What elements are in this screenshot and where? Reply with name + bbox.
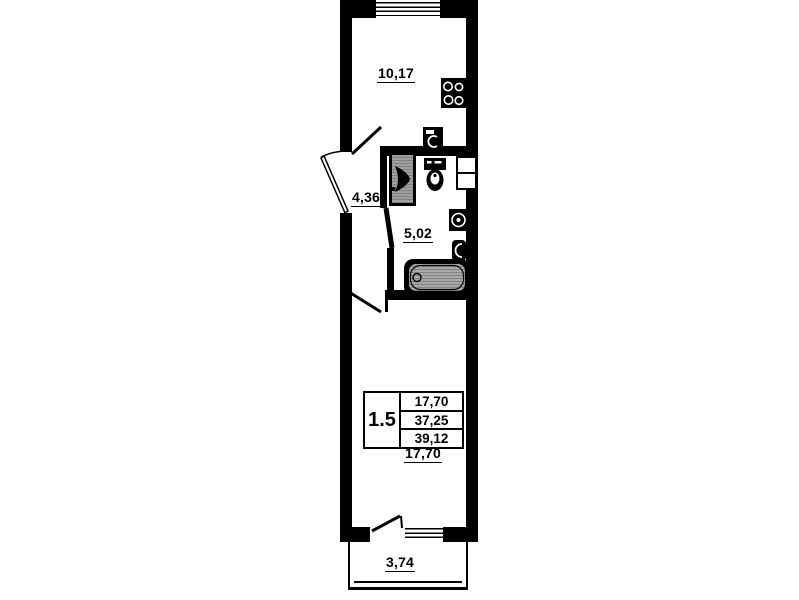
living-room-door-leaf-icon [349, 292, 381, 312]
apartment-type-cell: 1.5 [365, 393, 401, 447]
balcony-area-label: 3,74 [385, 555, 415, 572]
stamp-area-rows: 17,70 37,25 39,12 [401, 393, 462, 447]
bathroom-area-label: 5,02 [403, 226, 433, 243]
stamp-total-area: 39,12 [401, 430, 462, 447]
towel-rail-icon [452, 240, 466, 261]
hallway-area-label: 4,36 [351, 190, 381, 207]
window-icon [376, 2, 440, 16]
bathroom-door-leaf-icon [386, 208, 392, 248]
balcony-wall-bottom [348, 587, 468, 590]
vent-duct-lower [456, 172, 477, 190]
stamp-living-area: 17,70 [401, 393, 462, 412]
toilet-tank-icon [424, 158, 446, 170]
wall-balcony-left-segment [352, 527, 370, 542]
plan-linework [0, 0, 799, 600]
balcony-door-leaf-icon [372, 516, 402, 531]
bathtub-interior [409, 264, 465, 291]
balcony-window-icon [405, 528, 443, 541]
floor-plan: 10,17 4,36 5,02 17,70 3,74 1.5 17,70 37,… [0, 0, 799, 600]
stamp-apartment-area: 37,25 [401, 412, 462, 431]
washing-machine-icon [423, 127, 443, 152]
sink-icon [449, 209, 468, 231]
apartment-stamp-table: 1.5 17,70 37,25 39,12 [363, 391, 464, 449]
wall-left-lower [340, 213, 352, 542]
balcony-wall-right [466, 542, 468, 590]
kitchen-door-leaf-icon [352, 127, 381, 154]
wall-balcony-right-segment [443, 527, 466, 542]
wall-left-upper [340, 0, 352, 152]
kitchen-area-label: 10,17 [377, 66, 415, 83]
entrance-door-leaf-icon [321, 151, 348, 213]
balcony-sill-line [354, 581, 462, 583]
balcony-wall-left [348, 542, 350, 590]
wall-door-jamb-stub [385, 290, 388, 312]
stove-icon [441, 78, 466, 108]
washbasin-icon [389, 152, 416, 206]
wall-bathroom-left-lower [387, 248, 394, 292]
